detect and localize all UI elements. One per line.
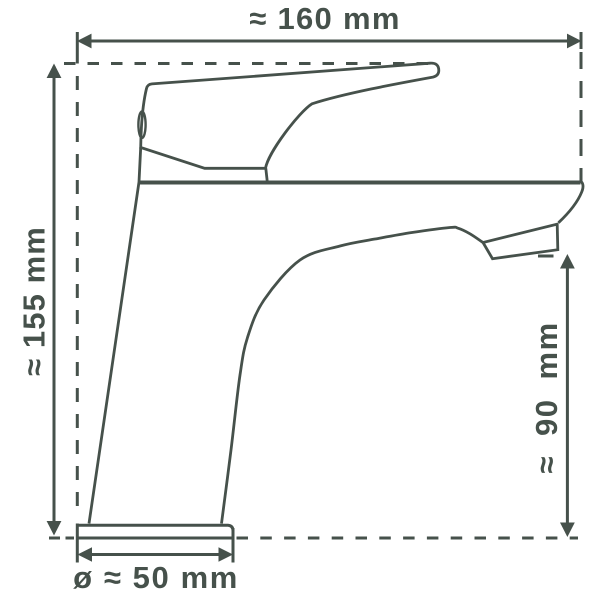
svg-text:ø ≈ 50 mm: ø ≈ 50 mm [73, 560, 239, 595]
svg-text:≈ 155 mm: ≈ 155 mm [17, 226, 52, 376]
svg-text:≈ 90 mm: ≈ 90 mm [529, 321, 564, 473]
svg-text:≈ 160 mm: ≈ 160 mm [249, 1, 401, 36]
